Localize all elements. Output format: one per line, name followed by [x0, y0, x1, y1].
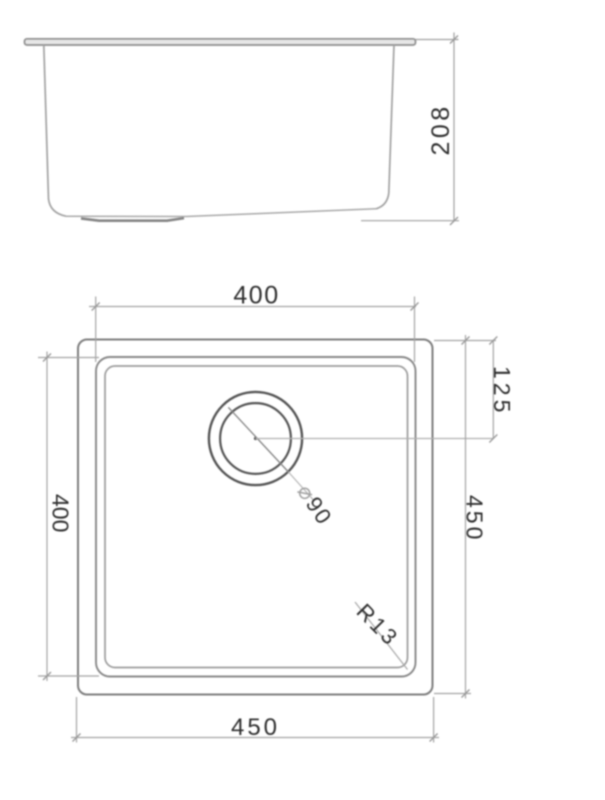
svg-text:125: 125: [489, 366, 515, 416]
svg-text:R13: R13: [352, 599, 404, 652]
svg-text:400: 400: [48, 494, 74, 532]
svg-text:400: 400: [233, 282, 279, 310]
svg-text:208: 208: [427, 103, 455, 155]
svg-text:450: 450: [231, 714, 280, 741]
svg-text:⌀90: ⌀90: [292, 480, 337, 530]
svg-text:450: 450: [462, 495, 488, 542]
